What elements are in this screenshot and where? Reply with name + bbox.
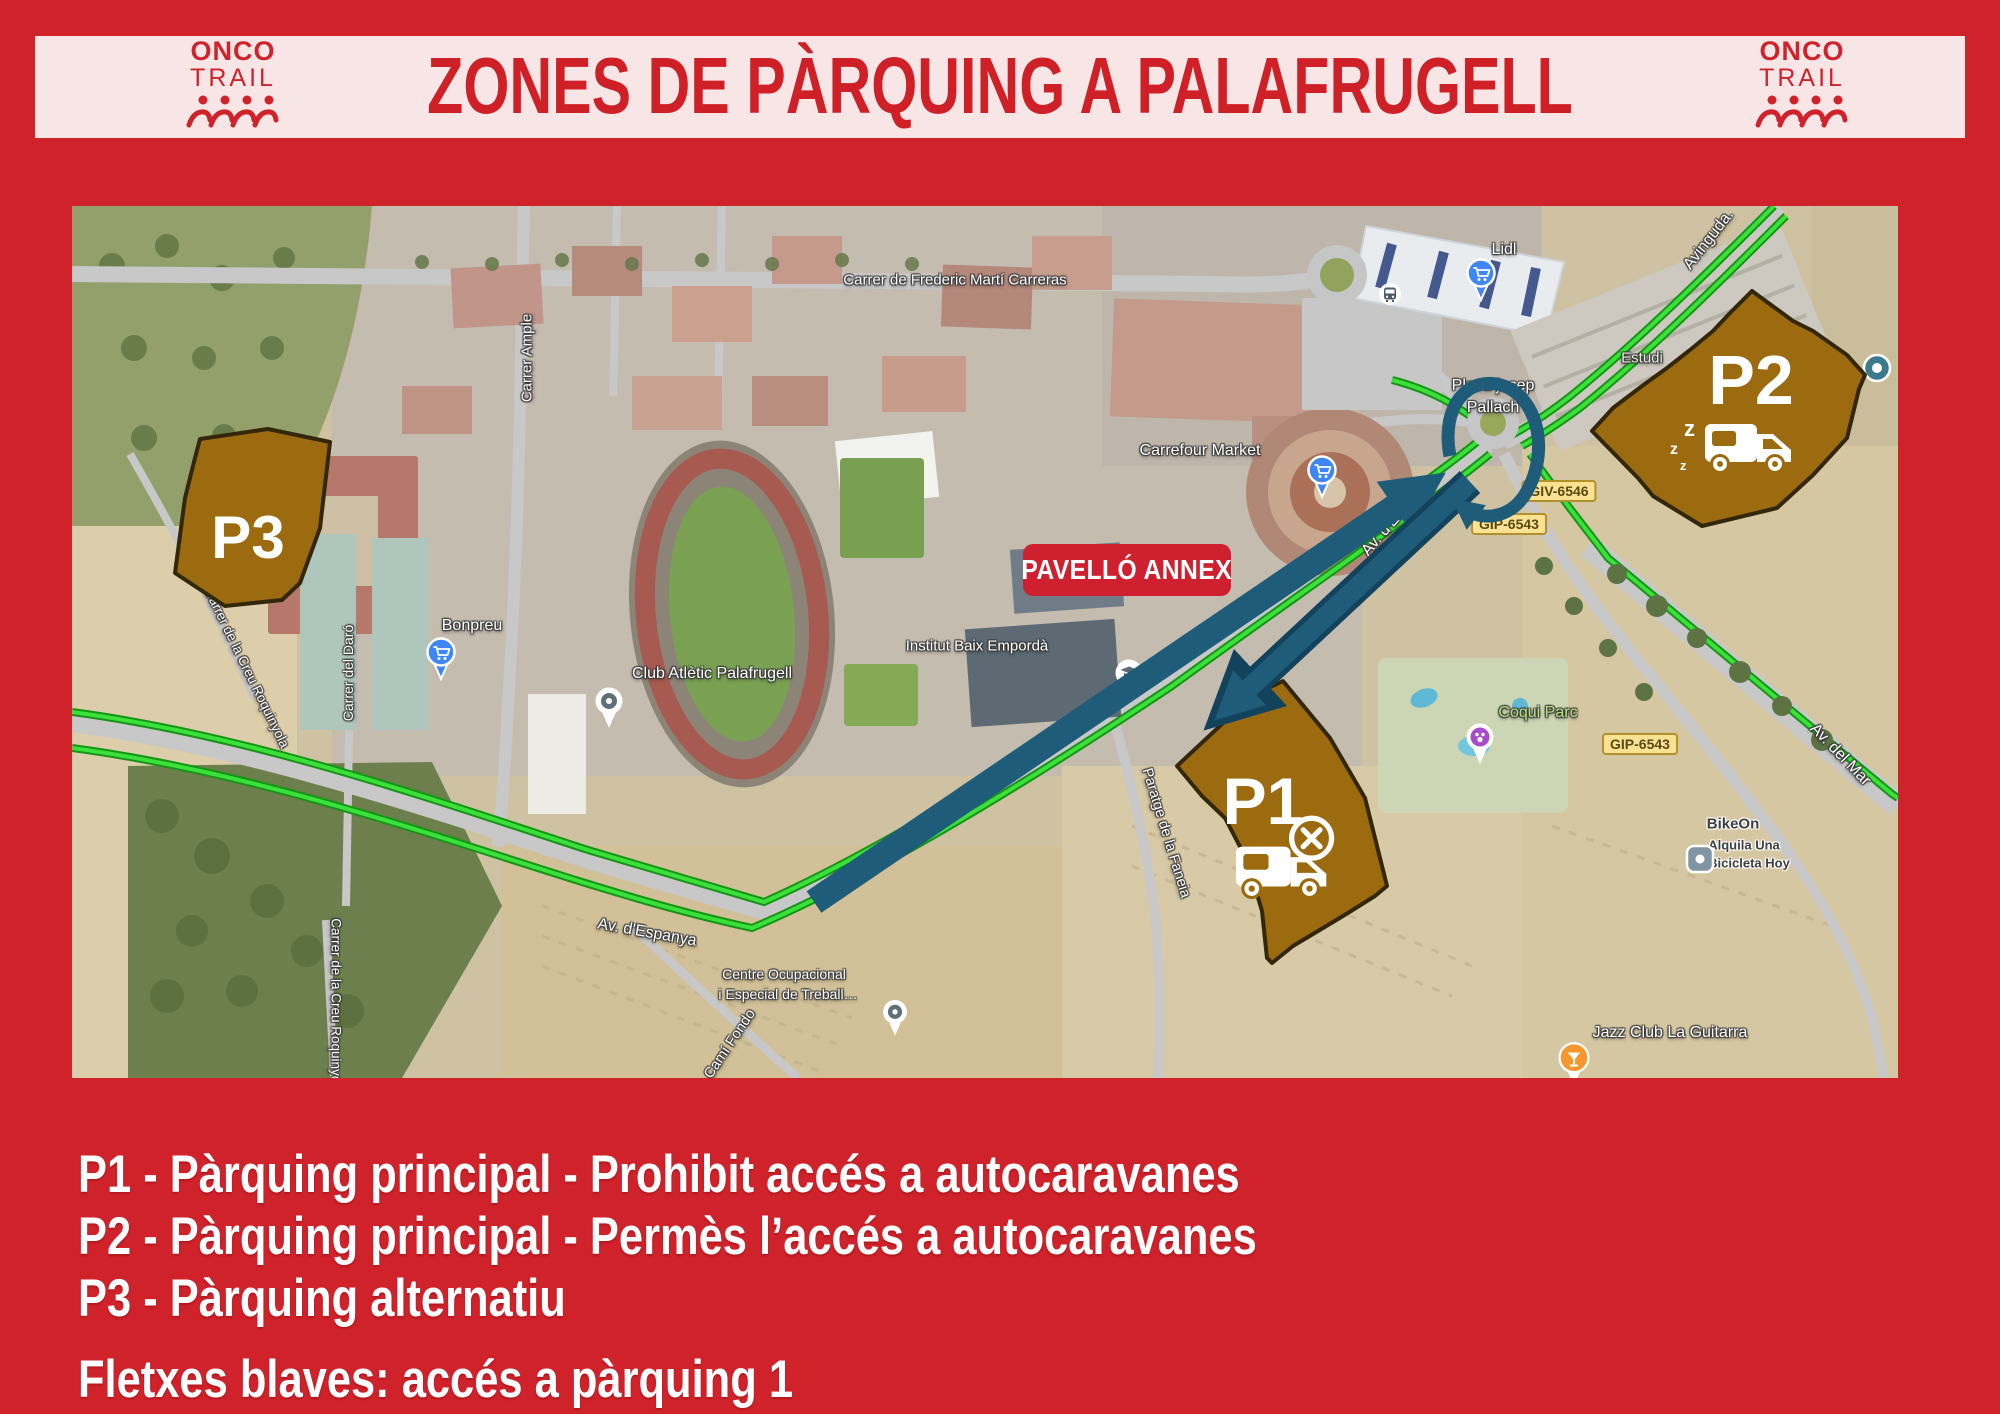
legend-line-p1: P1 - Pàrquing principal - Prohibit accés… [78, 1148, 1257, 1201]
road-badge-gip6543-b: GIP-6543 [1602, 733, 1678, 755]
zone-p3-polygon: P3 [175, 429, 330, 606]
zone-p2-polygon: P2 z z z [1592, 291, 1865, 526]
poi-label-bikeon: BikeOn [1707, 816, 1760, 833]
poi-label-bonpreu: Bonpreu [442, 617, 503, 635]
legend-line-p3: P3 - Pàrquing alternatiu [78, 1272, 1257, 1325]
arrow-to-p1-outline [1232, 482, 1470, 704]
svg-text:z: z [1684, 416, 1695, 441]
pavello-annex-text: PAVELLÓ ANNEX [1022, 554, 1233, 586]
legend-line-p2: P2 - Pàrquing principal - Permès l’accés… [78, 1210, 1257, 1263]
satellite-map: Carrer de Frederic Martí Carreras Carrer… [72, 206, 1898, 1078]
poi-label-carrefour: Carrefour Market [1140, 442, 1261, 460]
poi-label-placa-line2: Pallach [1467, 399, 1519, 417]
road-label-paratge: Paratge de la Faneia [1139, 766, 1194, 899]
poi-label-coqui-parc: Coqui Parc [1498, 704, 1577, 722]
road-label-av-del-mar: Av. del Mar [1806, 720, 1874, 790]
rowers-icon [1754, 94, 1850, 128]
road-label-ample: Carrer Ample [519, 314, 536, 402]
zone-p2-letter: P2 [1708, 341, 1794, 419]
rowers-icon [185, 94, 281, 128]
road-label-roquinyola-lower: Carrer de la Creu Roquinyola [329, 918, 344, 1078]
camper-icon [1705, 424, 1791, 473]
poi-label-bikeon-sub2: Bicicleta Hoy [1708, 856, 1790, 871]
road-label-frederic: Carrer de Frederic Martí Carreras [843, 272, 1066, 289]
poster: ZONES DE PÀRQUING A PALAFRUGELL ONCO TRA… [0, 0, 2000, 1414]
logo-text: TRAIL [153, 66, 313, 91]
camper-no-access-icon [1236, 818, 1332, 897]
poi-label-placa-line1: Placa josep [1452, 377, 1535, 395]
poi-label-centre-line2: i Especial de Treball… [718, 986, 857, 1002]
legend-note-arrows: Fletxes blaves: accés a pàrquing 1 [78, 1353, 1257, 1406]
logo-text: TRAIL [1722, 66, 1882, 91]
onco-trail-logo-left: ONCO TRAIL [153, 38, 313, 132]
road-label-cami-fondo: Camí Fondo [701, 1006, 759, 1078]
svg-text:z: z [1670, 441, 1678, 458]
svg-text:z: z [1680, 458, 1687, 473]
arrow-to-p1 [1232, 482, 1470, 704]
page-title: ZONES DE PÀRQUING A PALAFRUGELL [260, 40, 1740, 132]
logo-text: ONCO [153, 38, 313, 65]
poi-label-jazz-club: Jazz Club La Guitarra [1593, 1024, 1748, 1042]
road-label-espanya-west: Av. d'Espanya [596, 915, 698, 950]
road-badge-gip6543-a: GIP-6543 [1471, 513, 1547, 535]
road-label-espanya-diagonal: Av. d'Espanya [1358, 472, 1437, 560]
road-label-avinguda: Avinguda. [1680, 207, 1738, 274]
logo-text: ONCO [1722, 38, 1882, 65]
road-badge-giv6546: GIV-6546 [1521, 480, 1596, 502]
poi-label-lidl: Lidl [1492, 241, 1517, 259]
poi-label-centre-line1: Centre Ocupacional [722, 966, 846, 982]
poi-label-club-atletic: Club Atlètic Palafrugell [632, 665, 792, 683]
pavello-annex-label: PAVELLÓ ANNEX [1023, 544, 1231, 596]
legend: P1 - Pàrquing principal - Prohibit accés… [78, 1148, 1516, 1414]
zone-p1-polygon: P1 [1177, 681, 1387, 963]
poi-label-estudi: Estudi [1621, 350, 1663, 367]
zone-p3-letter: P3 [211, 504, 284, 571]
onco-trail-logo-right: ONCO TRAIL [1722, 38, 1882, 132]
road-label-daro: Carrer del Daró [340, 625, 356, 721]
poi-label-bikeon-sub1: Alquila Una [1708, 838, 1780, 853]
poi-label-institut: Institut Baix Empordà [906, 638, 1049, 655]
overnight-moon-icon: z z z [1637, 416, 1695, 480]
road-label-roquinyola-upper: Carrer de la Creu Roquinyola [202, 586, 292, 750]
zone-p1-letter: P1 [1223, 764, 1304, 838]
